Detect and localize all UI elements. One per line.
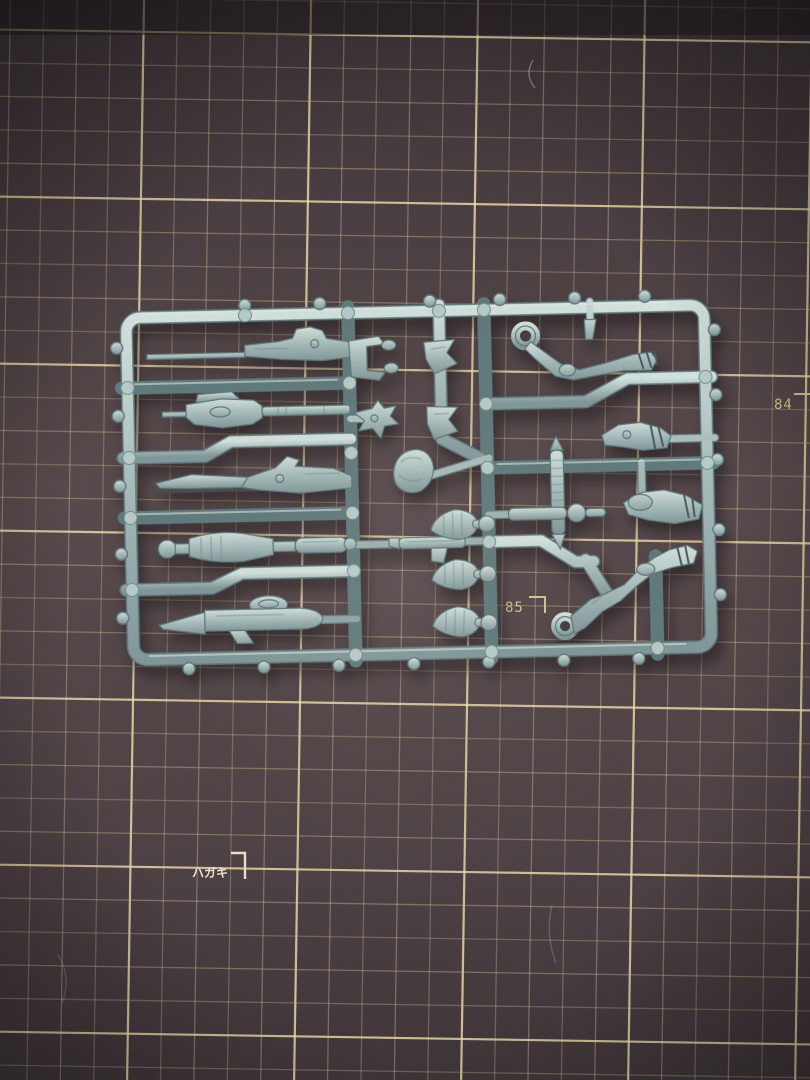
scene-svg: 84 85 ハガキ (0, 0, 810, 1080)
photo-cutting-mat-scene: 84 85 ハガキ (0, 0, 810, 1080)
vignette-overlay (0, 0, 810, 1080)
